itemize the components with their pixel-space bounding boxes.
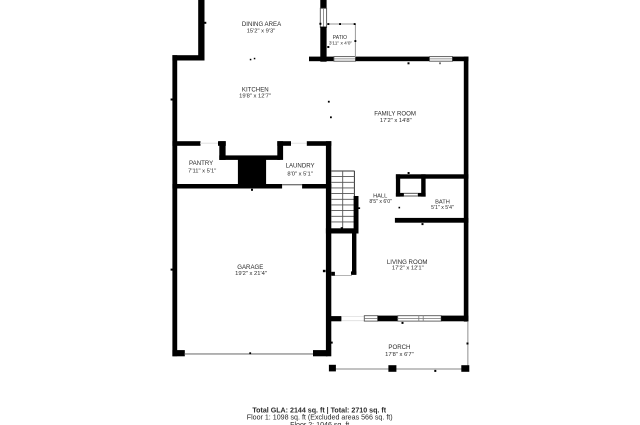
svg-text:FAMILY ROOM: FAMILY ROOM	[374, 111, 416, 118]
svg-text:GARAGE: GARAGE	[237, 264, 263, 271]
svg-text:5'1" x 5'4": 5'1" x 5'4"	[431, 205, 454, 211]
svg-text:PORCH: PORCH	[388, 344, 410, 351]
svg-text:Floor 2: 1046 sq. ft: Floor 2: 1046 sq. ft	[290, 421, 349, 425]
svg-text:PATIO: PATIO	[333, 35, 347, 41]
svg-text:19'2" x 21'4": 19'2" x 21'4"	[235, 271, 267, 277]
svg-text:17'2" x 14'8": 17'2" x 14'8"	[380, 118, 412, 124]
svg-text:8'5" x 6'0": 8'5" x 6'0"	[369, 199, 392, 205]
svg-text:8'0" x 5'1": 8'0" x 5'1"	[287, 171, 312, 177]
svg-text:19'8" x 12'7": 19'8" x 12'7"	[239, 94, 271, 100]
svg-text:17'8" x 6'7": 17'8" x 6'7"	[385, 352, 414, 358]
svg-text:LAUNDRY: LAUNDRY	[286, 162, 315, 169]
svg-text:KITCHEN: KITCHEN	[242, 87, 269, 94]
svg-text:3'11" x 4'0": 3'11" x 4'0"	[329, 41, 353, 47]
svg-text:PANTRY: PANTRY	[189, 160, 213, 167]
svg-text:DINING AREA: DINING AREA	[242, 21, 282, 28]
svg-text:7'11" x 5'1": 7'11" x 5'1"	[188, 169, 216, 175]
svg-text:15'2" x 9'3": 15'2" x 9'3"	[247, 29, 276, 35]
svg-text:17'2" x 12'1": 17'2" x 12'1"	[392, 266, 424, 272]
